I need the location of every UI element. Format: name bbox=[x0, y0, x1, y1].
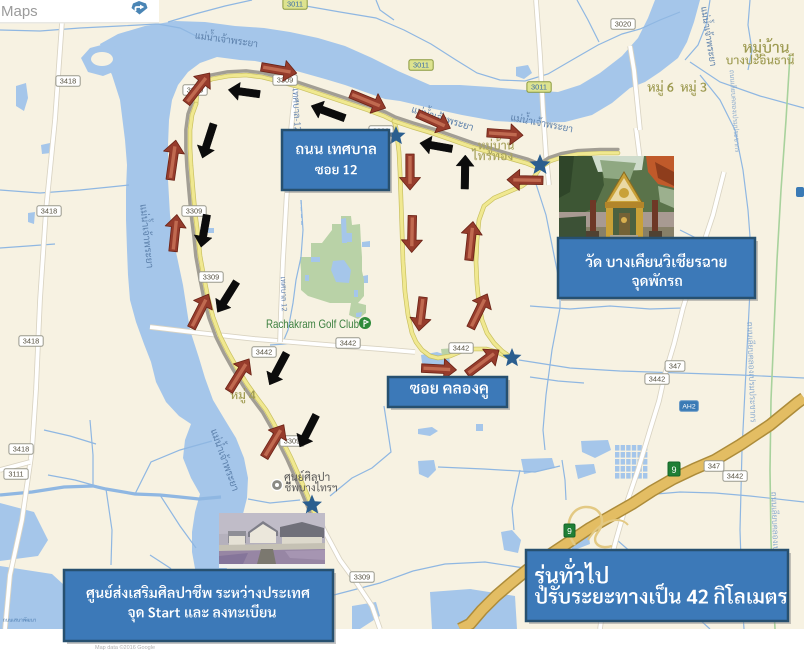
svg-text:3309: 3309 bbox=[203, 272, 219, 281]
svg-text:3442: 3442 bbox=[649, 374, 665, 383]
svg-text:Rachakram Golf Club: Rachakram Golf Club bbox=[266, 317, 359, 331]
svg-text:3011: 3011 bbox=[287, 0, 303, 8]
svg-text:3442: 3442 bbox=[256, 347, 272, 356]
svg-text:9: 9 bbox=[671, 465, 676, 475]
svg-text:Map data ©2016 Google: Map data ©2016 Google bbox=[95, 644, 155, 651]
svg-text:347: 347 bbox=[669, 361, 681, 370]
svg-text:AH2: AH2 bbox=[682, 403, 695, 410]
svg-text:9: 9 bbox=[567, 526, 572, 536]
svg-text:3418: 3418 bbox=[41, 206, 57, 215]
svg-text:3011: 3011 bbox=[413, 60, 429, 69]
svg-text:3309: 3309 bbox=[186, 206, 202, 215]
svg-text:3442: 3442 bbox=[727, 471, 743, 480]
svg-text:3442: 3442 bbox=[453, 343, 469, 352]
svg-text:347: 347 bbox=[708, 461, 720, 470]
svg-text:3020: 3020 bbox=[615, 19, 631, 28]
svg-text:3011: 3011 bbox=[531, 82, 547, 91]
svg-text:3418: 3418 bbox=[13, 444, 29, 453]
svg-text:3418: 3418 bbox=[23, 336, 39, 345]
svg-text:3309: 3309 bbox=[354, 572, 370, 581]
svg-text:3111: 3111 bbox=[8, 469, 23, 478]
svg-text:3418: 3418 bbox=[60, 76, 76, 85]
svg-text:3442: 3442 bbox=[340, 338, 356, 347]
svg-text:Maps: Maps bbox=[1, 3, 38, 20]
